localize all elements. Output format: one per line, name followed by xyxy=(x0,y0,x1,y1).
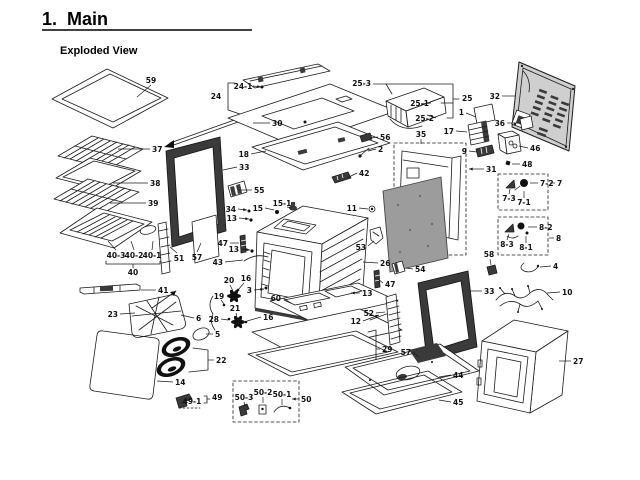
leader-line-52 xyxy=(376,312,385,313)
part-label-3: 3 xyxy=(247,286,252,295)
leader-line-28 xyxy=(221,319,228,320)
part-label-41: 41 xyxy=(158,286,168,295)
part-label-48: 48 xyxy=(522,160,532,169)
part-label-7-3: 7-3 xyxy=(502,194,516,203)
part-label-37: 37 xyxy=(152,145,162,154)
part-46-box-art xyxy=(498,131,521,154)
part-label-2: 2 xyxy=(378,145,383,154)
part-label-25: 25 xyxy=(462,94,472,103)
part-label-50-3: 50-3 xyxy=(235,393,254,402)
part-label-13: 13 xyxy=(229,245,239,254)
part-wire-art xyxy=(210,296,215,330)
part-label-54: 54 xyxy=(415,265,425,274)
leader-line-40-1 xyxy=(152,241,153,250)
part-label-49-1: 49-1 xyxy=(183,397,202,406)
part-51-strip-art xyxy=(158,222,171,274)
part-label-7: 7 xyxy=(557,179,562,188)
part-label-12: 12 xyxy=(351,317,361,326)
part-label-28: 28 xyxy=(209,315,219,324)
part-label-58: 58 xyxy=(484,250,494,259)
part-label-39: 39 xyxy=(148,199,158,208)
part-label-22: 22 xyxy=(216,356,226,365)
part-32-back-panel-art xyxy=(512,62,575,151)
leader-line-4 xyxy=(540,266,551,267)
part-label-25-1: 25-1 xyxy=(410,99,429,108)
part-label-29: 29 xyxy=(382,345,392,354)
part-label-7-2: 7-2 xyxy=(540,179,554,188)
leader-line-54 xyxy=(406,268,413,269)
leader-line-33 xyxy=(223,167,237,170)
part-53-bracket-art xyxy=(370,227,383,244)
part-label-51: 51 xyxy=(174,254,184,263)
leader-line-10 xyxy=(547,292,560,293)
part-label-53: 53 xyxy=(356,243,366,252)
part-label-34: 34 xyxy=(226,205,236,214)
leader-line-53 xyxy=(368,241,374,246)
part-label-31: 31 xyxy=(486,165,496,174)
part-label-21: 21 xyxy=(230,304,240,313)
part-label-55: 55 xyxy=(254,186,264,195)
part-label-1: 1 xyxy=(459,108,464,117)
part-label-56: 56 xyxy=(380,133,390,142)
part-label-40-1: 40-1 xyxy=(143,251,162,260)
page-subtitle: Exploded View xyxy=(60,45,138,57)
part-label-43: 43 xyxy=(213,258,223,267)
part-label-19: 19 xyxy=(214,292,224,301)
part-label-42: 42 xyxy=(359,169,369,178)
part-label-50-1: 50-1 xyxy=(273,390,292,399)
part-39-rack-art xyxy=(54,179,139,212)
part-23-wire-frame-art xyxy=(129,291,186,338)
part-label-18: 18 xyxy=(239,150,249,159)
leader-line-14 xyxy=(157,381,173,382)
part-label-24: 24 xyxy=(211,92,221,101)
part-label-44: 44 xyxy=(453,371,463,380)
part-label-16: 16 xyxy=(263,313,273,322)
part-label-47: 47 xyxy=(385,280,395,289)
leader-line-45 xyxy=(439,400,451,402)
part-label-8: 8 xyxy=(556,234,561,243)
part-label-26: 26 xyxy=(380,259,390,268)
part-label-25-2: 25-2 xyxy=(415,114,434,123)
part-36-bracket-art xyxy=(520,116,533,130)
part-label-47: 47 xyxy=(218,239,228,248)
leader-line-6 xyxy=(181,315,194,318)
leader-line-17 xyxy=(456,131,467,132)
part-label-15-1: 15-1 xyxy=(273,199,292,208)
leader-line-16 xyxy=(238,283,244,290)
leader-line-1 xyxy=(466,113,476,117)
part-label-11: 11 xyxy=(347,204,357,213)
part-label-9: 9 xyxy=(462,147,467,156)
part-label-16: 16 xyxy=(241,274,251,283)
leader-line-58 xyxy=(490,259,491,265)
part-label-45: 45 xyxy=(453,398,463,407)
part-label-7-1: 7-1 xyxy=(517,198,531,207)
part-4-wire-art xyxy=(521,263,539,272)
part-label-10: 10 xyxy=(562,288,572,297)
part-label-40-2: 40-2 xyxy=(125,251,144,260)
part-label-8-2: 8-2 xyxy=(539,223,553,232)
part-52-strip-art xyxy=(386,294,401,345)
part-label-13: 13 xyxy=(227,214,237,223)
leader-line-15 xyxy=(265,208,274,210)
part-55-glyph-art xyxy=(228,181,247,197)
part-label-30: 30 xyxy=(272,119,282,128)
leader-line-43 xyxy=(225,260,243,262)
part-label-46: 46 xyxy=(530,144,540,153)
page-title: 1. Main xyxy=(42,9,108,29)
part-label-8-3: 8-3 xyxy=(500,240,514,249)
part-label-40-3: 40-3 xyxy=(107,251,126,260)
part-label-6: 6 xyxy=(196,314,201,323)
leader-line-51 xyxy=(170,247,177,253)
leader-line-11 xyxy=(359,208,368,209)
part-label-35: 35 xyxy=(416,130,426,139)
part-label-20: 20 xyxy=(224,276,234,285)
part-label-24-1: 24-1 xyxy=(234,82,253,91)
part-label-36: 36 xyxy=(495,119,505,128)
part-label-33: 33 xyxy=(484,287,494,296)
part-label-38: 38 xyxy=(150,179,160,188)
part-label-13: 13 xyxy=(362,289,372,298)
part-48-clip-art xyxy=(506,161,511,166)
part-10-harness-art xyxy=(496,285,553,313)
part-41-rail-art xyxy=(80,284,140,294)
exploded-view-page: 1. Main Exploded View xyxy=(0,0,640,480)
part-9-glyph-art xyxy=(476,145,494,157)
part-label-14: 14 xyxy=(175,378,185,387)
part-17-terminal-art xyxy=(468,121,489,145)
part-label-32: 32 xyxy=(490,92,500,101)
part-label-60: 60 xyxy=(271,294,281,303)
leader-line-23 xyxy=(120,313,135,314)
part-label-17: 17 xyxy=(444,127,454,136)
exploded-view-diagram: 1. Main Exploded View xyxy=(0,0,640,480)
part-label-59: 59 xyxy=(146,76,156,85)
leader-line-9 xyxy=(469,151,477,152)
part-label-4: 4 xyxy=(553,262,558,271)
part-label-52: 52 xyxy=(364,309,374,318)
arrowhead-31 xyxy=(469,168,473,171)
part-label-40: 40 xyxy=(128,268,138,277)
leader-line-26 xyxy=(363,262,378,263)
part-insulation-panel-art xyxy=(383,177,448,272)
diagram-line-art xyxy=(52,62,575,422)
part-label-8-1: 8-1 xyxy=(519,243,533,252)
leader-line-40-2 xyxy=(131,241,134,250)
part-label-27: 27 xyxy=(573,357,583,366)
part-label-57: 57 xyxy=(192,253,202,262)
leader-line-16 xyxy=(247,317,261,321)
part-14-door-seal-art xyxy=(90,331,159,399)
part-58-nut-art xyxy=(487,265,497,275)
part-label-23: 23 xyxy=(108,310,118,319)
part-label-15: 15 xyxy=(253,204,263,213)
part-11-grommet-art xyxy=(369,206,375,212)
part-label-50-2: 50-2 xyxy=(254,388,273,397)
part-label-33: 33 xyxy=(239,163,249,172)
part-label-25-3: 25-3 xyxy=(352,79,371,88)
arrowhead-50 xyxy=(292,398,296,401)
part-label-5: 5 xyxy=(215,330,220,339)
part-label-50: 50 xyxy=(301,395,311,404)
part-21-fan-art xyxy=(231,315,245,330)
part-label-49: 49 xyxy=(212,393,222,402)
part-27-box-art xyxy=(477,320,568,413)
part-label-57: 57 xyxy=(401,348,411,357)
part-34-dot-art xyxy=(248,210,251,213)
